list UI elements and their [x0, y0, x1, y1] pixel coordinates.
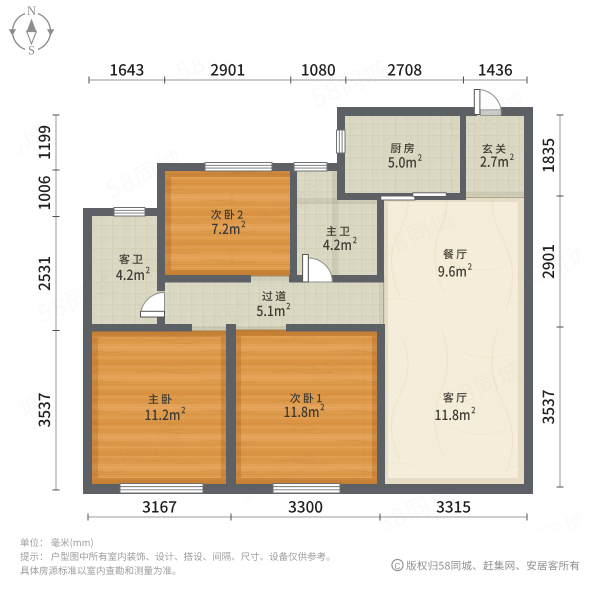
- svg-text:C: C: [394, 561, 400, 571]
- svg-text:N: N: [27, 4, 36, 18]
- svg-text:S: S: [28, 44, 35, 58]
